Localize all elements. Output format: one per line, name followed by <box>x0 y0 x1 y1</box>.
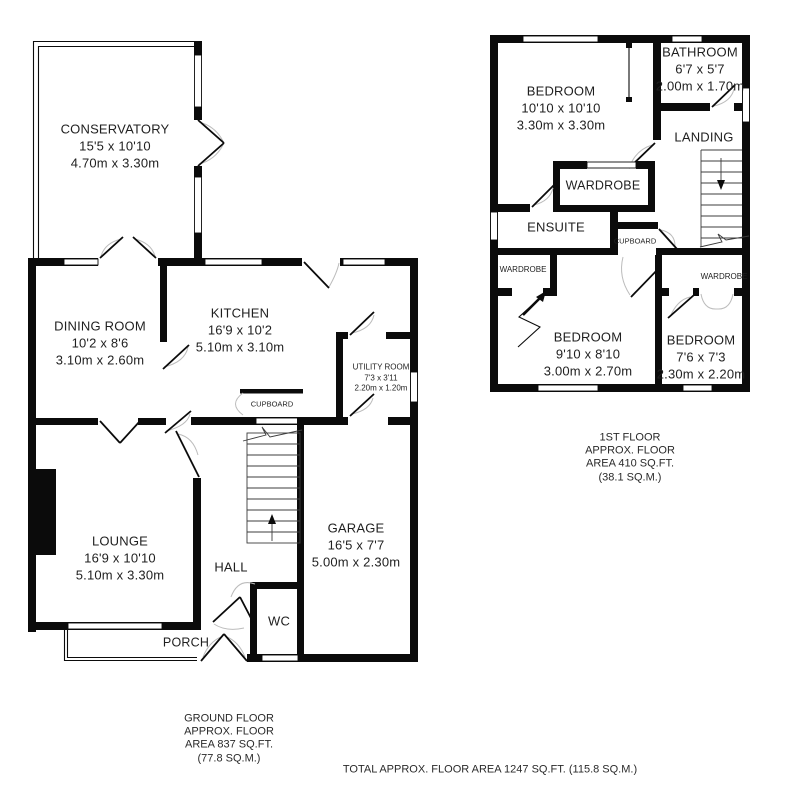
conservatory-right-wall <box>194 41 224 262</box>
room-label-hall: HALL <box>214 559 247 576</box>
room-dims-imperial: 6'7 x 5'7 <box>656 61 745 78</box>
kitchen-window-2 <box>343 259 385 265</box>
room-dims-imperial: 9'10 x 8'10 <box>544 346 633 363</box>
conservatory-dining-doors <box>100 237 156 258</box>
ground-top-wall <box>28 237 418 288</box>
kitchen-hall-wall <box>191 394 418 425</box>
room-dims-metric: 5.10m x 3.10m <box>196 339 285 356</box>
ground-floor-caption: GROUND FLOOR APPROX. FLOOR AREA 837 SQ.F… <box>184 713 274 766</box>
room-name: GARAGE <box>312 520 401 537</box>
room-label-conservatory: CONSERVATORY 15'5 x 10'10 4.70m x 3.30m <box>61 121 170 172</box>
room-label-utility-room: UTILITY ROOM 7'3 x 3'11 2.20m x 1.20m <box>353 362 410 394</box>
room-dims-metric: 5.00m x 2.30m <box>312 554 401 571</box>
lounge-bottom-wall <box>28 622 198 630</box>
room-dims-imperial: 7'6 x 7'3 <box>657 349 746 366</box>
room-label-wc: WC <box>268 613 290 630</box>
bathroom-window <box>672 36 702 42</box>
room-label-lounge: LOUNGE 16'9 x 10'10 5.10m x 3.30m <box>76 533 165 584</box>
room-dims-imperial: 16'9 x 10'2 <box>196 322 285 339</box>
room-name: CONSERVATORY <box>61 121 170 138</box>
wc-window <box>262 655 298 661</box>
staircase-ground <box>243 427 302 543</box>
ground-bottom-wall <box>247 654 418 662</box>
ground-left-wall <box>28 258 36 632</box>
bedroom3-top-wall <box>655 288 742 318</box>
total-area-caption: TOTAL APPROX. FLOOR AREA 1247 SQ.FT. (11… <box>343 763 637 776</box>
utility-window <box>411 372 418 402</box>
room-label-bedroom-2: BEDROOM 9'10 x 8'10 3.00m x 2.70m <box>544 329 633 380</box>
room-name: LANDING <box>674 129 733 146</box>
conservatory-window-2 <box>195 177 202 233</box>
room-label-bedroom-1: BEDROOM 10'10 x 10'10 3.30m x 3.30m <box>517 83 606 134</box>
room-label-ensuite: ENSUITE <box>527 219 585 236</box>
room-dims-imperial: 10'2 x 8'6 <box>54 335 146 352</box>
room-name: BEDROOM <box>657 332 746 349</box>
kitchen-back-door <box>304 262 339 288</box>
room-name: BEDROOM <box>544 329 633 346</box>
room-label-cupboard-first: CUPBOARD <box>614 237 657 246</box>
room-label-garage: GARAGE 16'5 x 7'7 5.00m x 2.30m <box>312 520 401 571</box>
wardrobe-left-bifold <box>518 291 546 347</box>
chimney-breast <box>36 469 56 555</box>
room-name: KITCHEN <box>196 305 285 322</box>
room-label-landing: LANDING <box>674 129 733 146</box>
dining-window <box>64 259 98 265</box>
room-name: HALL <box>214 559 247 576</box>
conservatory-french-doors <box>198 120 224 166</box>
first-floor-caption: 1ST FLOOR APPROX. FLOOR AREA 410 SQ.FT. … <box>585 432 675 485</box>
room-name: UTILITY ROOM <box>353 362 410 373</box>
room-dims-metric: 3.30m x 3.30m <box>517 117 606 134</box>
room-name: LOUNGE <box>76 533 165 550</box>
room-name: WC <box>268 613 290 630</box>
ground-right-wall <box>410 258 418 662</box>
room-dims-imperial: 7'3 x 3'11 <box>353 373 410 384</box>
room-dims-imperial: 16'9 x 10'10 <box>76 550 165 567</box>
room-name: WARDROBE <box>566 178 641 195</box>
wardrobe-right-doors <box>701 294 733 309</box>
floorplan-page: CONSERVATORY 15'5 x 10'10 4.70m x 3.30m … <box>0 0 800 787</box>
room-dims-metric: 2.30m x 2.20m <box>657 366 746 383</box>
room-label-bedroom-3: BEDROOM 7'6 x 7'3 2.30m x 2.20m <box>657 332 746 383</box>
room-name: DINING ROOM <box>54 318 146 335</box>
dining-bottom-wall <box>28 418 166 443</box>
staircase-first <box>700 150 749 247</box>
room-dims-imperial: 15'5 x 10'10 <box>61 138 170 155</box>
room-label-wardrobe-left: WARDROBE <box>500 265 547 276</box>
bedroom3-window <box>683 385 712 391</box>
room-label-dining-room: DINING ROOM 10'2 x 8'6 3.10m x 2.60m <box>54 318 146 369</box>
lounge-hall-divider <box>176 431 201 630</box>
room-dims-imperial: 10'10 x 10'10 <box>517 100 606 117</box>
stairs-up-arrow <box>268 514 276 541</box>
stairs-down-arrow <box>717 158 725 190</box>
lounge-window <box>68 623 162 629</box>
kitchen-window-1 <box>205 259 262 265</box>
room-dims-imperial: 16'5 x 7'7 <box>312 537 401 554</box>
room-label-porch: PORCH <box>163 635 209 652</box>
room-label-wardrobe-top: WARDROBE <box>566 178 641 195</box>
conservatory-window-1 <box>195 55 202 107</box>
room-dims-metric: 3.10m x 2.60m <box>54 352 146 369</box>
bedroom1-recess <box>626 43 632 102</box>
room-label-wardrobe-right: WARDROBE <box>701 272 748 283</box>
room-name: PORCH <box>163 635 209 652</box>
room-name: WARDROBE <box>500 265 547 276</box>
room-name: CUPBOARD <box>614 237 657 246</box>
room-label-bathroom: BATHROOM 6'7 x 5'7 2.00m x 1.70m <box>656 44 745 95</box>
room-name: CUPBOARD <box>251 400 294 409</box>
room-dims-metric: 3.00m x 2.70m <box>544 363 633 380</box>
room-name: BEDROOM <box>517 83 606 100</box>
bedroom1-window <box>523 36 598 42</box>
dining-kitchen-divider <box>160 266 191 433</box>
room-label-cupboard-ground: CUPBOARD <box>251 400 294 409</box>
room-dims-metric: 2.00m x 1.70m <box>656 78 745 95</box>
garage-left-wall <box>297 417 304 662</box>
room-dims-metric: 2.20m x 1.20m <box>353 383 410 394</box>
room-label-kitchen: KITCHEN 16'9 x 10'2 5.10m x 3.10m <box>196 305 285 356</box>
room-dims-metric: 4.70m x 3.30m <box>61 155 170 172</box>
room-name: ENSUITE <box>527 219 585 236</box>
room-dims-metric: 5.10m x 3.30m <box>76 567 165 584</box>
room-name: BATHROOM <box>656 44 745 61</box>
bedroom2-window <box>538 385 598 391</box>
room-name: WARDROBE <box>701 272 748 283</box>
ensuite-window <box>491 212 498 240</box>
